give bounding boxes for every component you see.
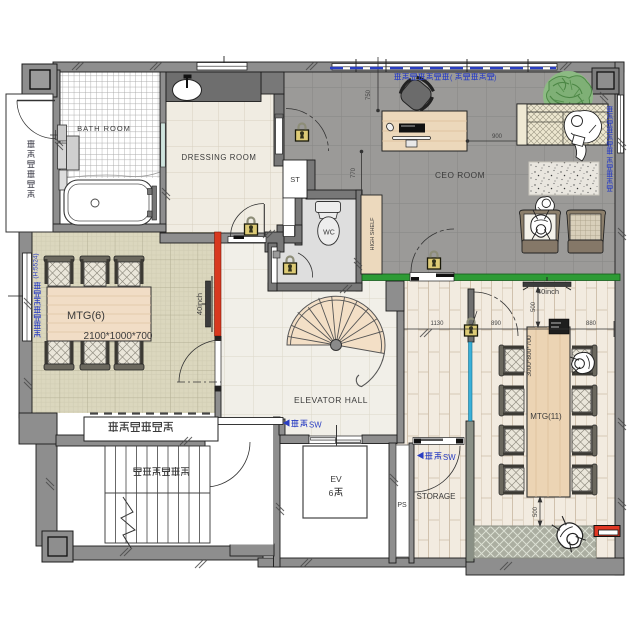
svg-text:MTG(6): MTG(6) [67, 310, 105, 322]
svg-text:40inch: 40inch [195, 293, 204, 315]
svg-text:(H:5524): (H:5524) [33, 253, 40, 278]
svg-text:HIGH SHELF: HIGH SHELF [370, 217, 376, 251]
svg-text:500: 500 [531, 301, 537, 312]
svg-text:3000*800*700: 3000*800*700 [526, 335, 533, 377]
svg-text:ST: ST [290, 175, 300, 184]
svg-text:SW: SW [443, 453, 456, 462]
svg-text:500: 500 [533, 506, 539, 517]
svg-text:6: 6 [329, 488, 334, 498]
svg-text:900: 900 [492, 134, 503, 140]
svg-text:SW: SW [309, 421, 322, 430]
svg-text:1130: 1130 [431, 321, 445, 327]
svg-text:880: 880 [586, 321, 597, 327]
svg-text:770: 770 [351, 167, 357, 178]
svg-text:EV: EV [330, 474, 342, 484]
svg-text:40inch: 40inch [537, 287, 559, 296]
svg-text:MTG(11): MTG(11) [530, 412, 562, 421]
svg-text:STORAGE: STORAGE [417, 492, 456, 501]
svg-text:890: 890 [491, 321, 502, 327]
svg-text:WC: WC [323, 230, 335, 237]
svg-text:750: 750 [366, 89, 372, 100]
svg-text:ELEVATOR HALL: ELEVATOR HALL [294, 395, 368, 405]
svg-text:2100*1000*700: 2100*1000*700 [84, 331, 153, 342]
svg-text:DRESSING ROOM: DRESSING ROOM [182, 153, 257, 162]
svg-text:): ) [494, 75, 496, 82]
svg-text:CEO ROOM: CEO ROOM [435, 170, 485, 180]
svg-text:PS: PS [397, 502, 407, 509]
svg-text:BATH ROOM: BATH ROOM [77, 124, 131, 133]
